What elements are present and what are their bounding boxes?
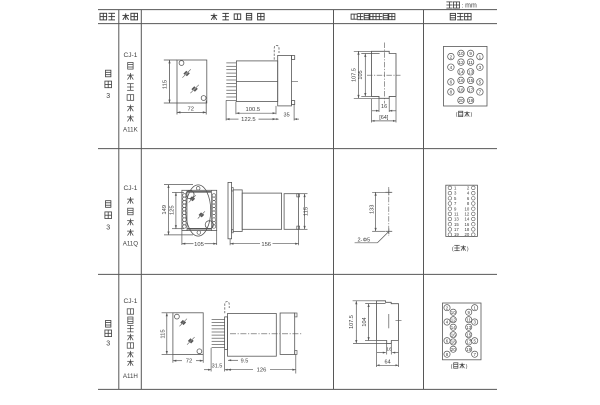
svg-text:20: 20 [458,98,464,103]
svg-text:17: 17 [466,340,471,345]
svg-text:14: 14 [451,325,456,330]
svg-text:18: 18 [458,87,464,92]
svg-text:105: 105 [358,70,364,79]
svg-text:20: 20 [451,347,456,352]
svg-text:13: 13 [468,70,474,75]
svg-text:13: 13 [466,325,471,330]
svg-text:19: 19 [454,232,459,237]
svg-text:14: 14 [458,70,464,75]
svg-text:19: 19 [468,98,474,103]
svg-text:[64]: [64] [379,115,389,121]
svg-text:125: 125 [170,205,176,215]
svg-text:(: ( [451,364,453,370]
svg-text:100.5: 100.5 [246,107,261,113]
svg-text:A11H: A11H [123,373,138,380]
svg-text:156: 156 [261,242,271,248]
svg-text:17: 17 [468,87,474,92]
svg-text:mm: mm [465,3,477,10]
svg-text:107.5: 107.5 [349,315,355,329]
svg-text:122.5: 122.5 [241,117,256,123]
svg-text:104: 104 [362,317,368,326]
svg-text:107.5: 107.5 [351,68,357,82]
svg-text:5: 5 [479,80,482,85]
svg-text:115: 115 [162,80,168,89]
svg-text:): ) [470,112,472,118]
svg-text::: : [462,2,464,9]
svg-text:31.5: 31.5 [212,364,223,370]
svg-text:115: 115 [161,329,167,338]
svg-text:19: 19 [466,347,471,352]
svg-text:1: 1 [479,54,482,59]
svg-text:(: ( [456,112,458,118]
svg-text:CJ-1: CJ-1 [123,52,137,59]
svg-text:(: ( [452,246,454,252]
svg-text:11: 11 [466,317,471,322]
svg-text:126: 126 [257,368,267,374]
svg-text:3: 3 [106,224,110,231]
svg-text:105: 105 [194,242,204,248]
svg-text:9.5: 9.5 [241,358,249,364]
svg-text:20: 20 [465,232,470,237]
svg-text:133: 133 [369,205,375,214]
svg-text:6: 6 [450,80,453,85]
svg-text:A11K: A11K [123,126,139,133]
svg-text:16: 16 [451,332,456,337]
svg-text:CJ-1: CJ-1 [123,185,137,192]
svg-text:64: 64 [385,360,391,366]
svg-text:35: 35 [284,112,290,118]
svg-text:4: 4 [450,65,453,70]
svg-text:10: 10 [451,310,456,315]
svg-text:11: 11 [468,60,473,65]
svg-text:2: 2 [450,54,453,59]
svg-text:): ) [466,364,468,370]
svg-text:12: 12 [451,317,456,322]
svg-text:18: 18 [451,340,456,345]
svg-text:A11Q: A11Q [123,241,139,248]
svg-text:72: 72 [186,359,192,365]
svg-text:12: 12 [458,60,464,65]
svg-text:10: 10 [458,51,464,56]
svg-text:3: 3 [479,65,482,70]
svg-text:3: 3 [106,93,110,100]
svg-text:16: 16 [386,346,392,352]
svg-text:72: 72 [187,106,193,112]
svg-text:149: 149 [162,205,168,215]
svg-text:15: 15 [466,332,471,337]
svg-text:16: 16 [381,104,387,110]
svg-text:7: 7 [479,90,482,95]
svg-text:CJ-1: CJ-1 [123,298,137,305]
svg-text:3: 3 [106,341,110,348]
svg-text:): ) [467,246,469,252]
svg-text:16: 16 [458,78,464,83]
svg-text:15: 15 [468,78,474,83]
svg-text:115: 115 [303,207,309,216]
svg-text:9: 9 [469,51,472,56]
svg-text:8: 8 [450,90,453,95]
